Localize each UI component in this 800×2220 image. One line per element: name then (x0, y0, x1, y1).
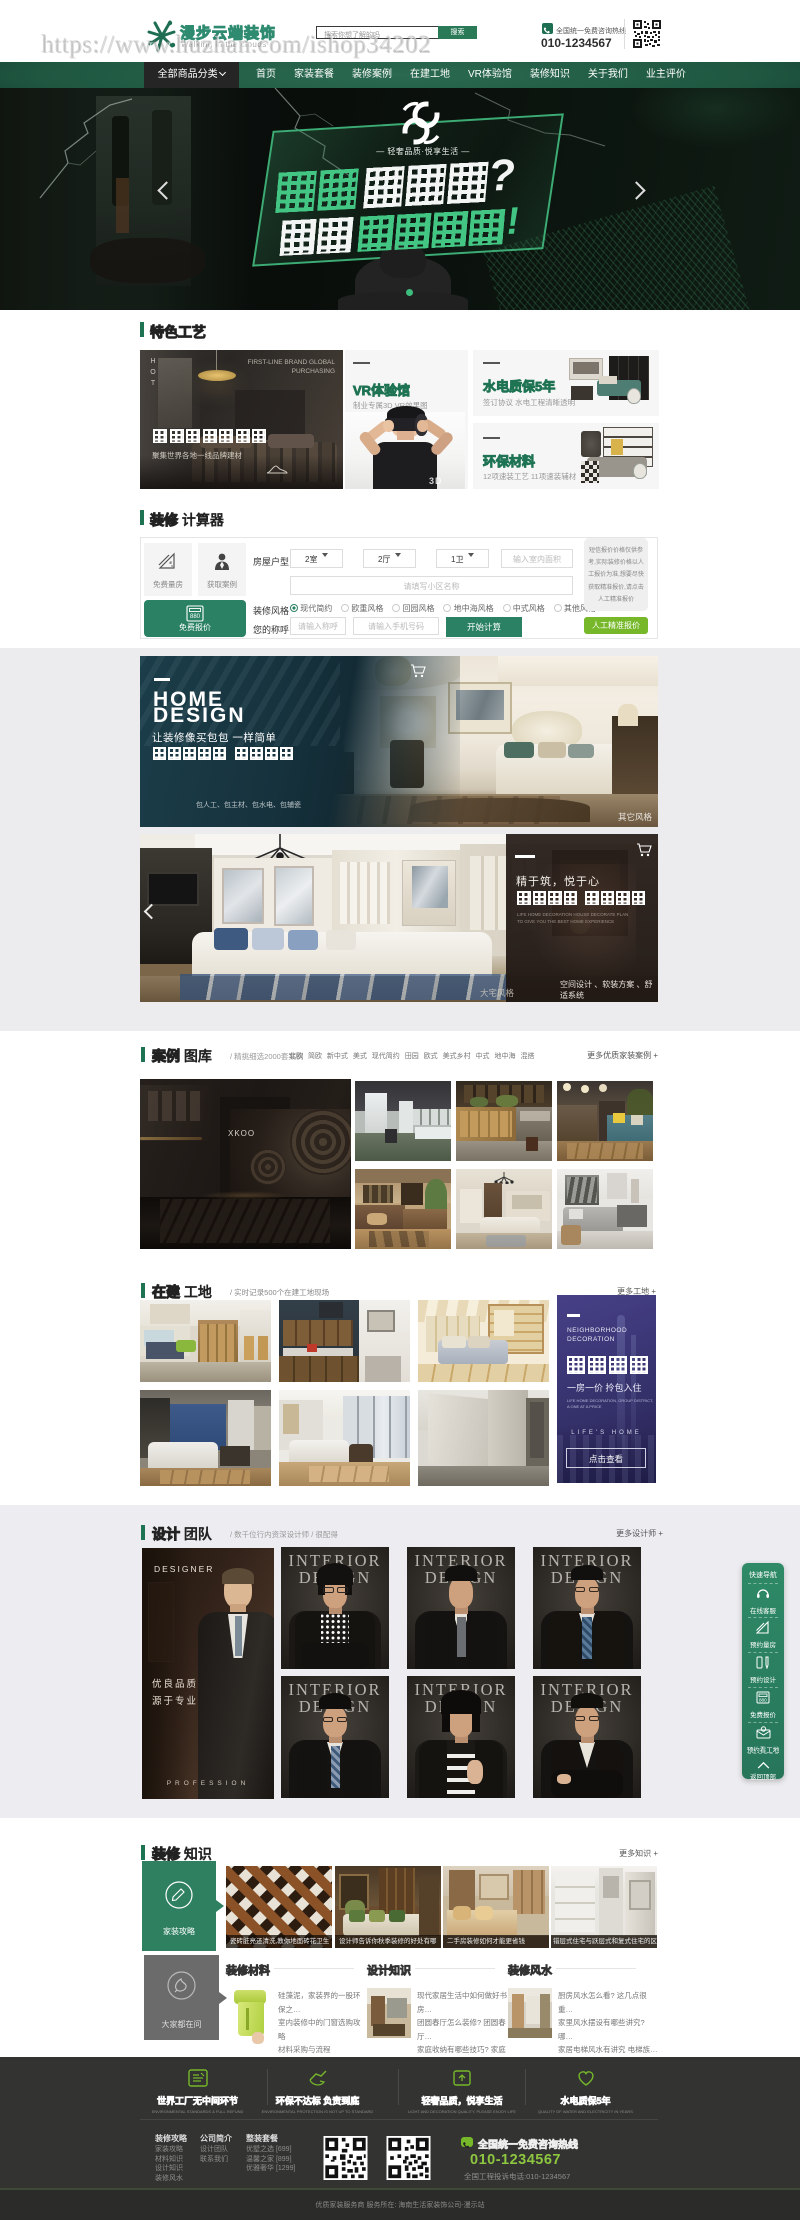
svg-text:880: 880 (190, 614, 201, 620)
svg-text:880: 880 (759, 1698, 767, 1703)
